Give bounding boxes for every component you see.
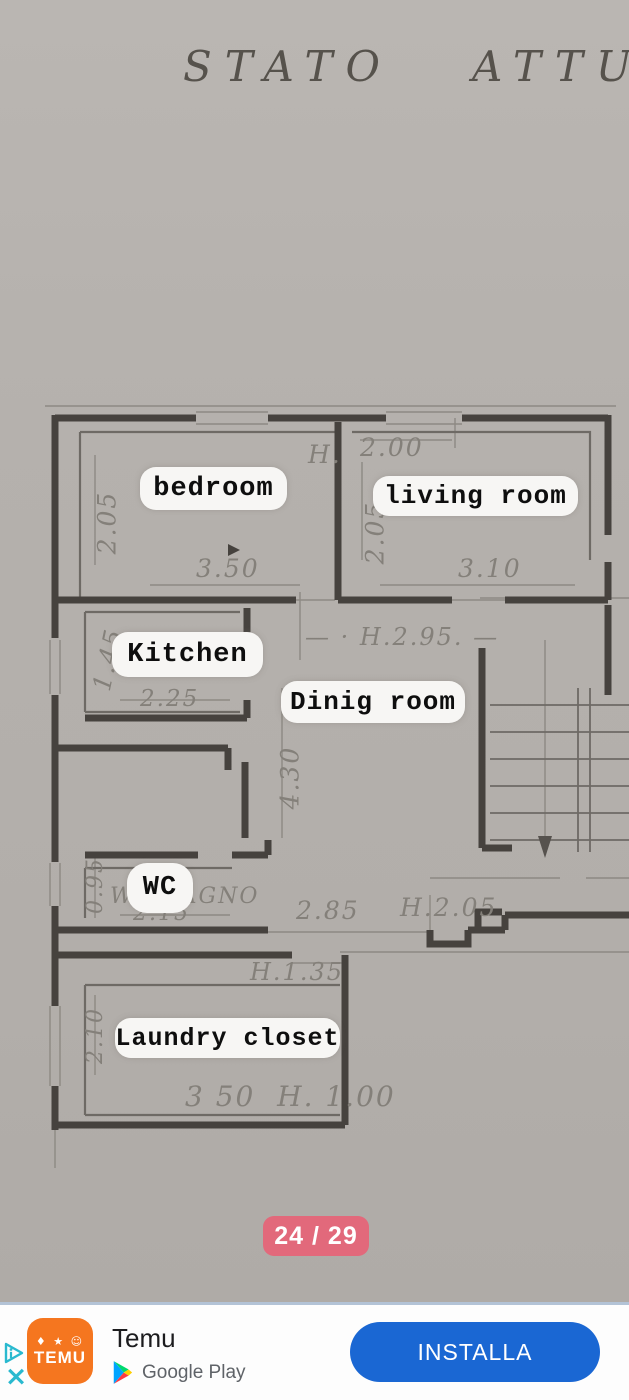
plan-measurement: 4.30	[275, 746, 304, 810]
page-indicator-badge: 24 / 29	[263, 1216, 369, 1256]
close-icon[interactable]: ×	[4, 1363, 28, 1391]
plan-measurement: 3.50	[196, 554, 260, 583]
install-button[interactable]: INSTALLA	[350, 1322, 600, 1382]
temu-icon-glyphs: ♦ ★ ☺	[36, 1335, 84, 1348]
room-label-bedroom: bedroom	[140, 467, 287, 510]
google-play-row: Google Play	[112, 1361, 246, 1384]
room-label-living-room: living room	[373, 476, 578, 516]
plan-measurement: — · H.2.95. —	[305, 623, 499, 651]
plan-measurement: H.2.05	[400, 893, 497, 922]
plan-measurement: 3 50 H. 1.00	[185, 1080, 396, 1113]
screenshot-root: STATO ATTUA	[0, 0, 629, 1400]
plan-measurement: 2.10	[83, 1007, 108, 1064]
ad-app-name[interactable]: Temu	[112, 1323, 176, 1354]
plan-measurement: H.1.35	[250, 958, 344, 986]
temu-app-icon[interactable]: ♦ ★ ☺ TEMU	[27, 1318, 93, 1384]
plan-measurement: 2.25	[140, 686, 199, 712]
plan-title: STATO ATTUA	[183, 42, 629, 91]
plan-measurement: 2.00	[360, 433, 424, 462]
google-play-label: Google Play	[142, 1362, 246, 1384]
room-label-wc: WC	[127, 863, 193, 913]
room-label-laundry-closet: Laundry closet	[115, 1018, 340, 1058]
room-label-dining-room: Dinig room	[281, 681, 465, 723]
plan-measurement: 2.85	[296, 896, 360, 925]
ad-banner: × ♦ ★ ☺ TEMU Temu Google Play INSTALLA	[0, 1302, 629, 1400]
plan-measurement: H.	[308, 440, 342, 469]
plan-measurement: 2.05	[92, 491, 121, 555]
plan-measurement: 3.10	[458, 554, 522, 583]
google-play-icon	[112, 1361, 133, 1384]
temu-icon-wordmark: TEMU	[34, 1348, 86, 1367]
room-label-kitchen: Kitchen	[112, 632, 263, 677]
plan-measurement: 0.95	[83, 857, 108, 914]
